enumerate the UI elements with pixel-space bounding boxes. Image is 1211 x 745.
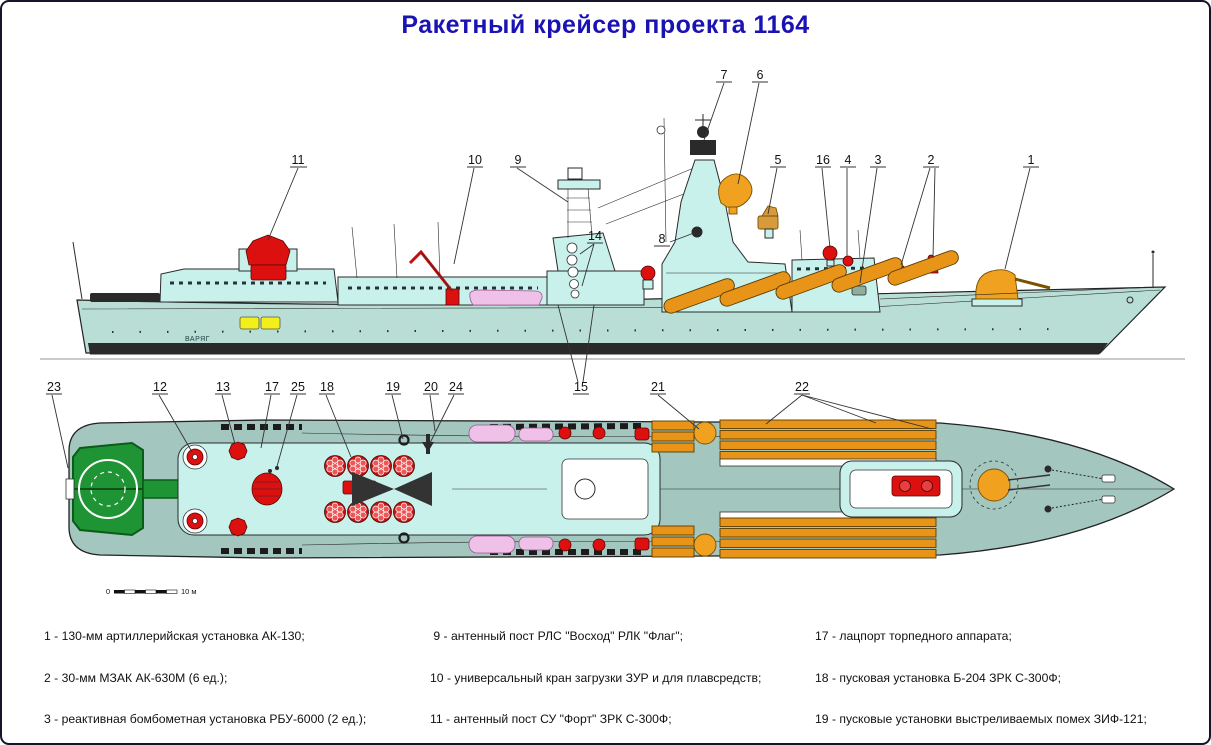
callout-label-22: 22 [795, 380, 809, 394]
osa-director-bottom [229, 518, 247, 536]
korvet5-top [694, 422, 716, 444]
callout-label-11: 11 [292, 153, 305, 167]
legend-item: 17 - лацпорт торпедного аппарата; [815, 630, 1147, 644]
satcom-antenna [692, 227, 703, 238]
ship-diagram: ВАРЯГ [2, 2, 1211, 597]
scale-bar: 0 10 м [106, 587, 197, 596]
legend-item: 1 - 130-мм артиллерийская установка АК-1… [44, 630, 379, 644]
callout-label-8: 8 [659, 232, 666, 246]
ak130-barbette-plan [892, 476, 940, 496]
callout-label-23: 23 [47, 380, 61, 394]
fregat-ma-radar [246, 235, 290, 280]
callout-label-15: 15 [574, 380, 588, 394]
osa-director-top [229, 442, 247, 460]
callout-label-12: 12 [153, 380, 167, 394]
callout-label-21: 21 [651, 380, 665, 394]
gak-lacport [66, 479, 74, 499]
callout-label-19: 19 [386, 380, 400, 394]
callout-label-24: 24 [449, 380, 463, 394]
salute-gun-1 [268, 469, 272, 473]
callout-label-6: 6 [757, 68, 764, 82]
callout-label-9: 9 [515, 153, 522, 167]
callout-label-5: 5 [775, 153, 782, 167]
stern-flagstaff [73, 242, 82, 299]
whip-antennas [352, 222, 440, 278]
voskhod-top-radar [690, 114, 716, 155]
mr184-director [758, 206, 778, 238]
aft-deckhouse [160, 269, 338, 302]
legend-item: 18 - пусковая установка Б-204 ЗРК С-300Ф… [815, 672, 1147, 686]
mr123-radar [843, 256, 853, 266]
osa-launcher-top [183, 445, 207, 469]
scale-ten-label: 10 м [181, 587, 197, 596]
bow-jackstaff [1152, 251, 1155, 289]
callout-label-1: 1 [1028, 153, 1035, 167]
callout-label-7: 7 [721, 68, 728, 82]
plan-view [66, 420, 1174, 558]
legend-item: 2 - 30-мм МЗАК АК-630М (6 ед.); [44, 672, 379, 686]
drawing-sheet: Ракетный крейсер проекта 1164 [0, 0, 1211, 745]
callout-label-25: 25 [291, 380, 305, 394]
korvet5-bottom [694, 534, 716, 556]
scale-zero-label: 0 [106, 587, 110, 596]
legend-item: 11 - антенный пост СУ "Форт" ЗРК С-300Ф; [430, 713, 761, 727]
funnel-block [547, 271, 644, 305]
legend-item: 10 - универсальный кран загрузки ЗУР и д… [430, 672, 761, 686]
legend-item: 19 - пусковые установки выстреливаемых п… [815, 713, 1147, 727]
boot-topping [88, 343, 1108, 355]
callout-label-18: 18 [320, 380, 334, 394]
hull-name: ВАРЯГ [185, 336, 210, 343]
legend-column-1: 1 - 130-мм артиллерийская установка АК-1… [44, 603, 379, 745]
callout-label-20: 20 [424, 380, 438, 394]
callout-label-3: 3 [875, 153, 882, 167]
legend-item: 9 - антенный пост РЛС "Восход" РЛК "Флаг… [430, 630, 761, 644]
bridge-mast-1 [800, 230, 802, 260]
callout-label-10: 10 [468, 153, 482, 167]
ship-boat-side [470, 290, 542, 305]
fregat-radar-plan [252, 473, 282, 505]
legend-column-3: 17 - лацпорт торпедного аппарата; 18 - п… [815, 603, 1147, 745]
legend-item: 3 - реактивная бомбометная установка РБУ… [44, 713, 379, 727]
legend-column-2: 9 - антенный пост РЛС "Восход" РЛК "Флаг… [430, 603, 761, 745]
callout-label-13: 13 [216, 380, 230, 394]
callout-label-16: 16 [816, 153, 830, 167]
callout-label-14: 14 [588, 229, 602, 243]
osa-launcher-bottom [183, 509, 207, 533]
callout-label-17: 17 [265, 380, 279, 394]
ograda-post [641, 266, 655, 289]
callout-label-4: 4 [845, 153, 852, 167]
bridge-mast-2 [858, 230, 860, 258]
funnel-casing [553, 233, 615, 271]
callout-label-2: 2 [928, 153, 935, 167]
